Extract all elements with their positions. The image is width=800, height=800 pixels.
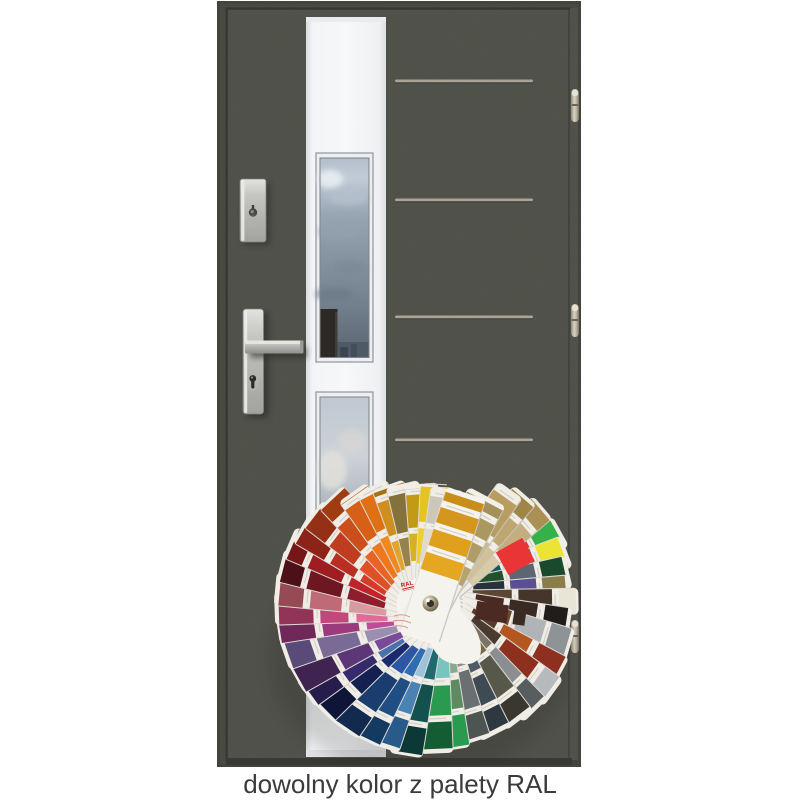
svg-text:dowolny kolor z palety RAL: dowolny kolor z palety RAL xyxy=(243,769,557,799)
